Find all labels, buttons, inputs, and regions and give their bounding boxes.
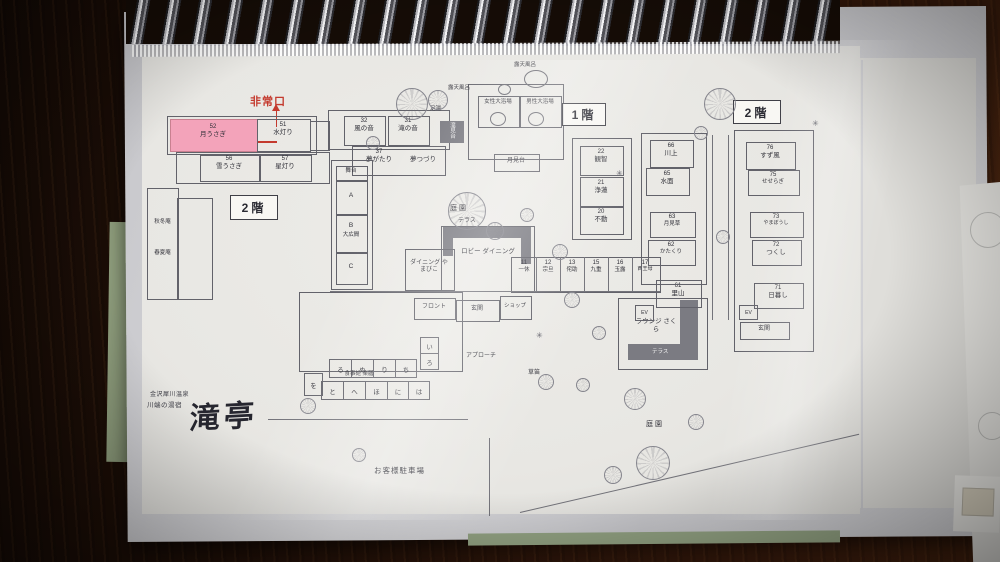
room-label-kanchi: 22観智 [582,149,620,163]
photo-scene: 非常口 52月うさぎ 51水灯り 56雪うさぎ 57星灯り 秋冬庵 春夏庵 2階… [0,0,1000,562]
building-outline [177,198,213,300]
room-name: 不動 [582,216,620,223]
tree-icon [704,88,736,120]
room-name: 玉露 [608,267,632,273]
label-kusabue: 草笛 [528,370,540,377]
room-label-iroha-ho: ほ [365,381,388,400]
room-name: 九重 [584,267,608,273]
tree-icon [716,230,730,244]
room-label-tsukushi: 72つくし [754,242,798,256]
label-tsuki-midai: 月見台 [496,158,536,165]
label-dining-yamabiko: ダイニング やまびこ [408,260,450,274]
room-number: 11 [512,260,536,267]
room-label-shutoan: 秋冬庵 [149,219,176,226]
room-number: 71 [756,285,800,292]
room-name: つくし [754,249,798,256]
room-label-iroha-chi: ち [395,359,417,378]
room-name: 日暮し [756,292,800,299]
bath-tub-icon [528,112,544,126]
room-number: 75 [750,172,796,179]
logo-subtitle-2: 川端の湯宿 [147,399,182,409]
room-name: せせらぎ [750,179,796,185]
path-line [712,135,713,320]
room-number: 15 [584,260,608,267]
room-name: 月うさぎ [178,131,248,138]
room-name: 月見草 [652,221,692,227]
tree-icon [300,398,316,414]
room-label-kazenooto: 32風の音 [345,118,383,132]
label-hall-a: A [338,192,364,200]
boundary-line [268,419,468,420]
room-number: 63 [652,214,692,221]
floorplan: 非常口 52月うさぎ 51水灯り 56雪うさぎ 57星灯り 秋冬庵 春夏庵 2階… [0,0,1000,562]
room-number: 37 [356,149,402,156]
room-label-kawakami: 66川上 [652,143,690,157]
room-label-iroha-he: へ [343,381,366,400]
tree-icon [624,388,646,410]
tree-icon [552,244,568,260]
room-name: やまぼうし [752,221,800,227]
label-stage: 舞台 [338,168,364,175]
label-bath-women: 女性大浴場 [482,99,514,106]
label-entrance-annex: 玄関 [740,326,788,333]
tree-icon [486,222,504,240]
tree-icon [592,326,606,340]
taki-midai-deck: 滝見台 [440,121,464,143]
emergency-exit-label: 非常口 [250,93,286,109]
floor-badge-1f: 1階 [562,103,606,126]
room-number: 76 [748,145,792,152]
room-label-yukiusagi: 56雪うさぎ [202,156,256,170]
tree-icon [396,88,428,120]
room-name: 水面 [648,178,686,185]
room-name: 雪うさぎ [202,163,256,170]
label-lobby: ロビー ダイニング [460,248,516,256]
label-hall-b-name: 大広間 [334,232,368,239]
room-label-minamo: 65水面 [648,171,686,185]
room-label-ikkyu: 11一休 [512,260,536,273]
room-label-gyokuro: 16玉露 [608,260,632,273]
building-outline [147,188,179,300]
logo-subtitle-1: 金沢犀川温泉 [150,389,189,398]
room-number: 52 [178,124,248,131]
tree-icon [520,208,534,222]
room-name: かたくり [650,249,692,255]
room-number: 57 [262,156,308,163]
tree-icon [694,126,708,140]
open-air-bath-icon [498,84,511,95]
room-label-wabisuke: 13侘助 [560,260,584,273]
room-name: すず風 [748,152,792,159]
small-card [953,475,1000,533]
room-label-tsukimiso: 63月見草 [652,214,692,227]
label-shop: ショップ [500,303,530,310]
label-bath-men: 男性大浴場 [524,99,556,106]
room-label-iroha-i: い [420,337,439,354]
logo-name: 滝亭 [189,390,259,438]
label-garden-se: 庭園 [646,421,664,429]
label-entrance: 玄関 [456,306,498,313]
room-label-suzukaze: 76すず風 [748,145,792,159]
path-line [728,135,729,320]
building-outline [310,121,330,151]
room-label-higurashi: 71日暮し [756,285,800,299]
elevator-label: EV [739,305,758,320]
room-label-iroha-ro: ろ [420,353,439,370]
room-label-shunkaan: 春夏庵 [149,250,176,257]
room-label-sotan: 12宗旦 [536,260,560,273]
room-name: 滝の音 [389,125,427,132]
room-label-hoshiakari: 57星灯り [262,156,308,170]
room-name: 川上 [652,150,690,157]
label-approach: アプローチ [466,353,496,360]
room-label-katakuri: 62かたくり [650,242,692,255]
floor-badge-2f-left: 2階 [230,195,278,220]
room-number: 22 [582,149,620,156]
room-number: 21 [582,180,620,187]
room-label-yumetsuzuri: 夢つづり [404,156,442,164]
room-number: 20 [582,209,620,216]
room-number: 51 [261,122,305,129]
room-number: 72 [754,242,798,249]
label-hall-b: B [338,222,364,230]
tree-icon [428,90,448,110]
shrub-icon: ✳ [536,332,543,340]
label-dining-hall: 食事処 楽膳 [334,371,384,378]
elevator-label: EV [635,305,654,321]
tree-icon [448,192,486,230]
tree-icon [576,378,590,392]
shrub-icon: ✳ [812,120,819,128]
label-parking: お客様駐車場 [374,466,425,475]
room-label-kokonoe: 15九重 [584,260,608,273]
room-number: 13 [560,260,584,267]
label-terrace-lounge: テラス [652,349,668,356]
room-name: 浄蓮 [582,187,620,194]
boundary-line [489,438,490,516]
label-front-desk: フロント [414,304,454,311]
room-label-satoyama: 61里山 [658,283,698,297]
room-number: 65 [648,171,686,178]
room-name: 観智 [582,156,620,163]
card-image [962,487,995,516]
parking-boundary-line [520,434,859,513]
room-label-iroha-ni: に [387,381,409,400]
room-label-fudo: 20不動 [582,209,620,223]
room-name: 一休 [512,267,536,273]
room-name: 里山 [658,290,698,297]
room-number: 16 [608,260,632,267]
room-number: 66 [652,143,690,150]
room-label-yamaboshi: 73やまぼうし [752,214,800,226]
bath-tub-icon [490,112,506,126]
tree-icon [538,374,554,390]
shrub-icon: ✳ [616,170,623,178]
room-name: 侘助 [560,267,584,273]
room-number: 56 [202,156,256,163]
tree-icon [604,466,622,484]
label-taki-midai: 滝見台 [448,122,456,139]
label-rotenburo-right: 露天風呂 [514,62,536,69]
room-name: 星灯り [262,163,308,170]
room-label-tsukiusagi: 52月うさぎ [178,124,248,138]
open-air-bath-icon [524,70,548,88]
room-label-takinooto: 31滝の音 [389,118,427,132]
label-rotenburo-left: 露天風呂 [448,85,470,92]
tree-icon [636,446,670,480]
tree-icon [564,292,580,308]
room-label-mizuakari: 51水灯り [261,122,305,136]
tree-icon [352,448,366,462]
room-number: 62 [650,242,692,249]
room-number: 32 [345,118,383,125]
label-hall-c: C [338,263,364,271]
room-label-seseragi: 75せせらぎ [750,172,796,185]
floor-badge-2f-right: 2階 [733,100,781,124]
room-label-joren: 21浄蓮 [582,180,620,194]
tree-icon [688,414,704,430]
room-label-iroha-ha: は [408,381,430,400]
room-label-iroha-to: と [321,381,344,400]
tree-icon [366,136,380,150]
room-name: 水灯り [261,129,305,136]
room-name: 風の音 [345,125,383,132]
room-name: 宗旦 [536,267,560,273]
room-number: 12 [536,260,560,267]
